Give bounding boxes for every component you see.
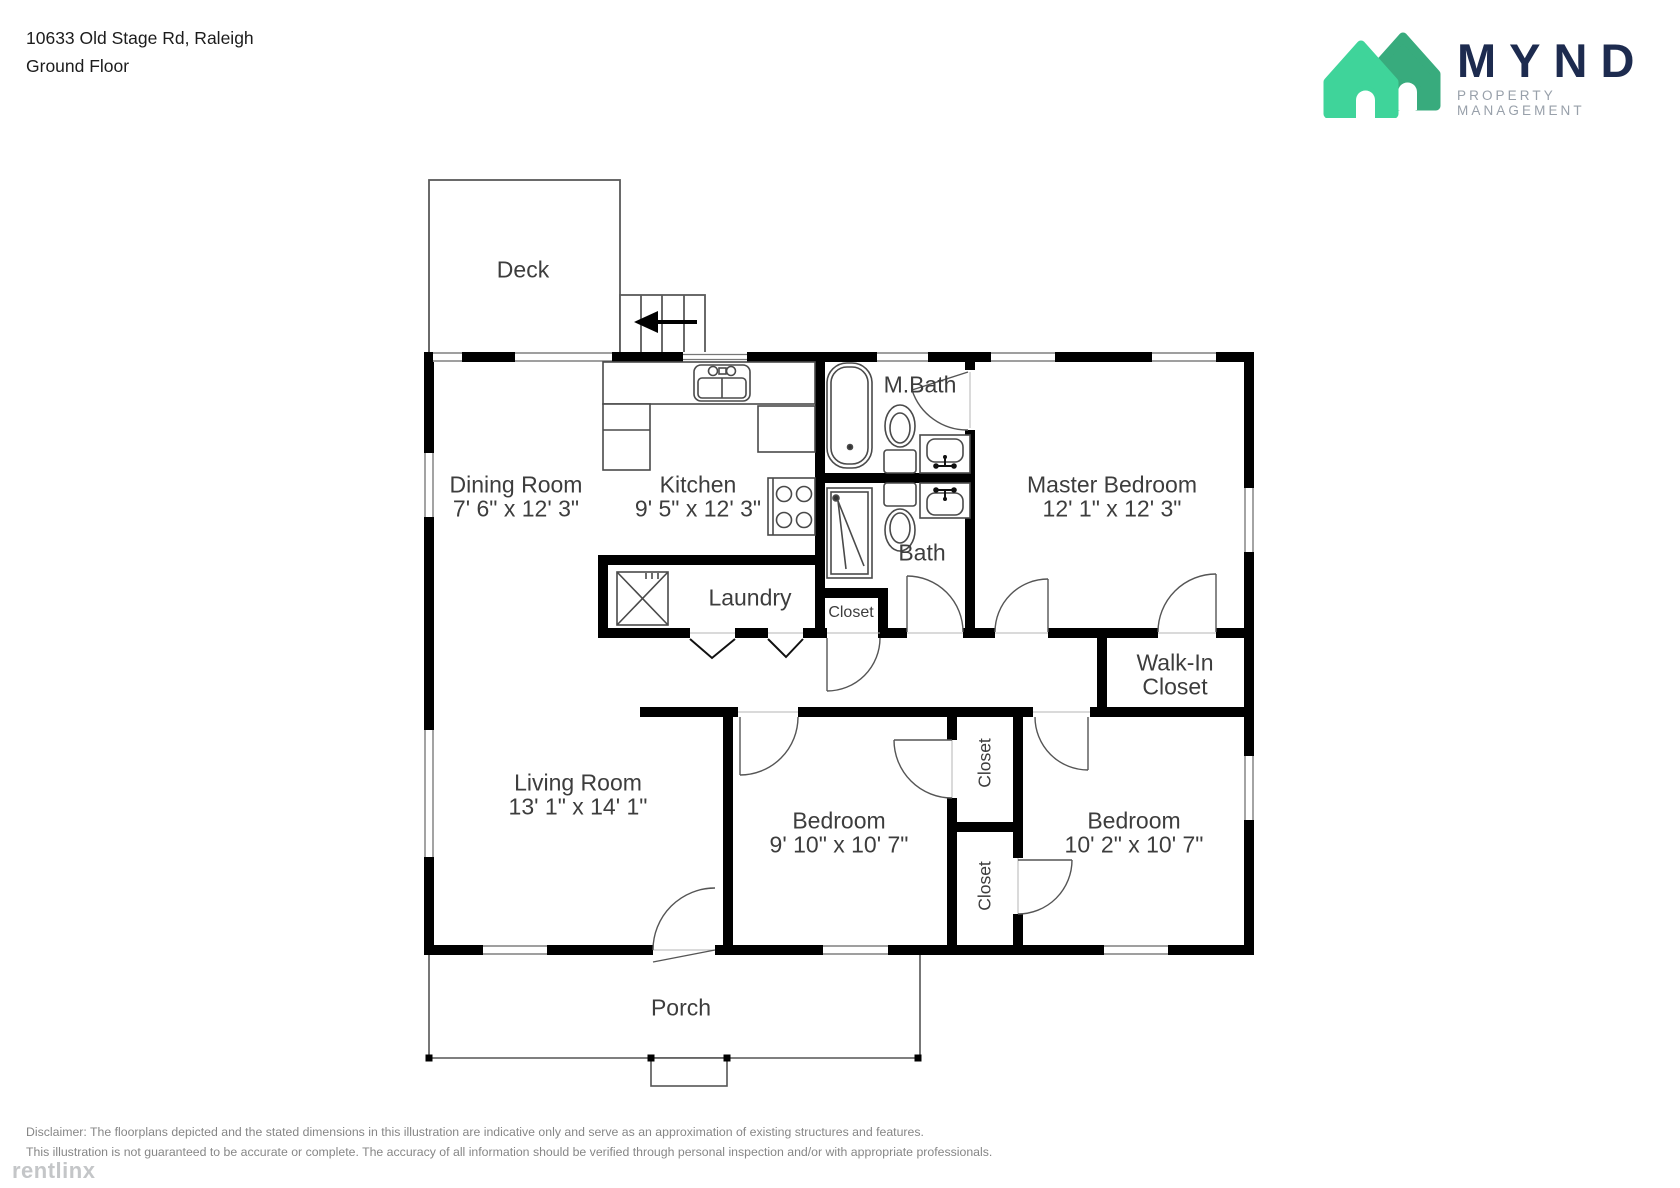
room-label-master-bath: M.Bath bbox=[884, 373, 957, 397]
room-label-bedroom-2: Bedroom10' 2" x 10' 7" bbox=[1065, 810, 1204, 857]
disclaimer: Disclaimer: The floorplans depicted and … bbox=[26, 1122, 992, 1162]
rentlinx-watermark: rentlinx bbox=[12, 1158, 95, 1184]
floorplan-drawing bbox=[0, 0, 1680, 1188]
bifold-door-marks bbox=[690, 639, 803, 658]
room-label-porch: Porch bbox=[651, 996, 711, 1020]
room-label-deck: Deck bbox=[497, 258, 549, 282]
room-label-bedroom-closet-1: Closet bbox=[976, 738, 994, 788]
room-label-master-bedroom: Master Bedroom12' 1" x 12' 3" bbox=[1027, 474, 1197, 521]
laundry-washer bbox=[617, 572, 668, 625]
floorplan: Deck Dining Room7' 6" x 12' 3" Kitchen9'… bbox=[0, 0, 1680, 1188]
room-label-hall-closet: Closet bbox=[828, 605, 873, 621]
disclaimer-line-1: Disclaimer: The floorplans depicted and … bbox=[26, 1122, 992, 1142]
room-label-bedroom-closet-2: Closet bbox=[976, 861, 994, 911]
floorplan-page: 10633 Old Stage Rd, Raleigh Ground Floor… bbox=[0, 0, 1680, 1188]
room-label-walk-in-closet: Walk-InCloset bbox=[1136, 652, 1213, 699]
room-label-dining-room: Dining Room7' 6" x 12' 3" bbox=[450, 474, 583, 521]
room-label-bath: Bath bbox=[898, 541, 945, 565]
deck-outline bbox=[429, 180, 705, 354]
room-label-kitchen: Kitchen9' 5" x 12' 3" bbox=[635, 474, 761, 521]
disclaimer-line-2: This illustration is not guaranteed to b… bbox=[26, 1142, 992, 1162]
room-label-living-room: Living Room13' 1" x 14' 1" bbox=[509, 772, 648, 819]
room-label-bedroom-1: Bedroom9' 10" x 10' 7" bbox=[770, 810, 909, 857]
porch-outline bbox=[429, 955, 920, 1086]
room-label-laundry: Laundry bbox=[708, 586, 791, 610]
